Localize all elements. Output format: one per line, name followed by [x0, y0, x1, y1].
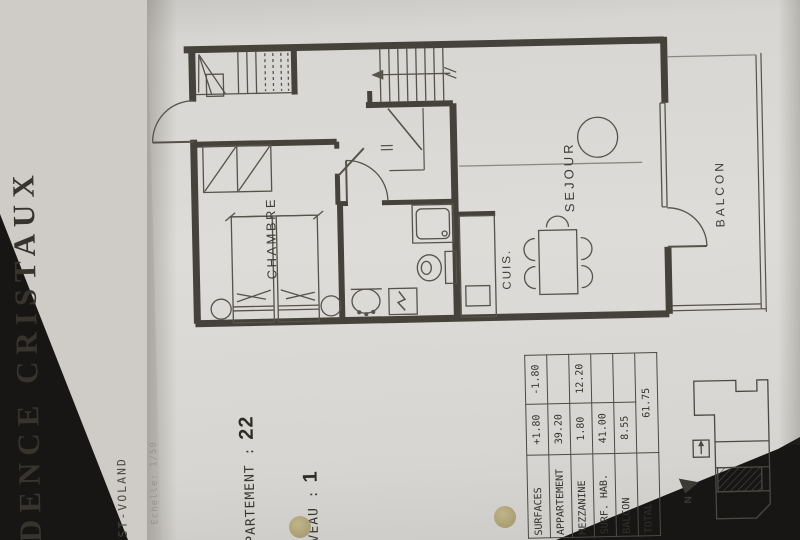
nightstand-symbol — [211, 299, 231, 319]
stairs-upper-flight — [371, 47, 457, 102]
mezzanine-edge-line — [459, 162, 642, 166]
window-symbol — [660, 103, 667, 207]
toilet-symbol — [417, 251, 457, 284]
room-labels: CHAMBRE CUIS. SEJOUR BALCON — [262, 138, 729, 294]
cell-label: APPARTEMENT — [549, 454, 573, 537]
room-label-chambre: CHAMBRE — [263, 197, 280, 280]
site-plan: N — [677, 380, 771, 520]
bed-symbol — [231, 216, 274, 323]
bathroom-fixtures — [349, 204, 457, 316]
balcony-door-arc — [667, 207, 707, 247]
chambre-furniture — [203, 144, 342, 324]
electric-panel-symbol — [389, 288, 418, 315]
chair-symbol — [546, 216, 568, 227]
entrance-door — [152, 101, 194, 143]
pillow-marks — [237, 289, 315, 302]
chair-symbol — [524, 239, 535, 261]
walls — [184, 37, 670, 324]
stairs-winder — [195, 51, 292, 97]
chair-symbol — [524, 267, 535, 289]
sink-symbol — [466, 286, 490, 306]
cell-value — [613, 353, 636, 402]
scanned-floor-plan-photo: IDENCE CRISTAUX REST-VOLAND Echelle: 1/5… — [0, 0, 800, 540]
punch-hole — [289, 516, 311, 538]
residence-title: IDENCE CRISTAUX — [5, 168, 49, 540]
chambre-door-leaf — [338, 148, 365, 176]
surfaces-table: SURFACES +1.80 -1.80 APPARTEMENT 39.20 M… — [524, 352, 661, 539]
round-table-symbol — [577, 117, 618, 158]
shower-symbol — [412, 204, 454, 243]
site-entrance-symbol — [693, 440, 709, 457]
apartment-value: 22 — [235, 415, 258, 440]
building-outline — [694, 380, 769, 443]
cell-label: SURFACES — [527, 455, 551, 538]
location-text: REST-VOLAND — [114, 457, 130, 540]
cell-label: MEZZANINE — [571, 454, 595, 537]
scale-note: Echelle: 1/50 — [149, 441, 161, 525]
cell-label: BALCON — [615, 453, 639, 536]
room-label-balcon: BALCON — [712, 160, 727, 228]
north-label: N — [683, 496, 694, 503]
cell-value: 1.80 — [570, 403, 593, 454]
nightstand-symbol — [321, 296, 341, 316]
cell-value: 39.20 — [548, 403, 571, 454]
dimension-line — [225, 211, 323, 221]
sejour-furniture — [458, 116, 645, 296]
room-label-sejour: SEJOUR — [561, 141, 577, 212]
cell-value — [547, 354, 570, 403]
level-value: 1 — [300, 470, 322, 483]
inner-room-door — [380, 108, 424, 171]
cell-value: +1.80 — [526, 404, 549, 455]
apartment-highlight-hatch — [718, 467, 762, 492]
bathroom-door — [346, 160, 388, 202]
washbasin-symbol — [351, 289, 383, 316]
bed-symbol — [276, 215, 319, 322]
blanket-lines — [233, 305, 319, 311]
north-arrow-icon — [679, 478, 699, 493]
stair-direction-arrow — [371, 70, 383, 80]
room-label-cuisine: CUIS. — [501, 249, 514, 290]
balcony — [659, 53, 766, 314]
chair-symbol — [581, 265, 592, 287]
cell-value: 41.00 — [592, 402, 615, 453]
balcony-railing — [667, 53, 766, 314]
cell-total: 61.75 — [635, 353, 659, 453]
apartment-label: PPARTEMENT : — [242, 447, 259, 540]
table-row: TOTAL 61.75 — [635, 353, 661, 536]
kitchen-counter-symbol — [459, 215, 496, 317]
chair-symbol — [581, 237, 592, 259]
cell-label: TOTAL — [637, 453, 661, 536]
cell-value: -1.80 — [525, 355, 548, 404]
cell-label: SURF. HAB. — [593, 453, 617, 536]
sheet-content: IDENCE CRISTAUX REST-VOLAND Echelle: 1/5… — [0, 0, 800, 540]
dining-table-symbol — [539, 230, 578, 295]
punch-hole — [494, 506, 516, 528]
cell-value: 8.55 — [614, 402, 637, 453]
balcony-door-leaf — [668, 246, 707, 247]
cell-value: 12.20 — [569, 354, 592, 403]
cell-value — [591, 353, 614, 402]
wardrobe-symbol — [203, 145, 272, 192]
apartment-number-line: PPARTEMENT :22 — [235, 415, 261, 540]
building-lower-block — [715, 441, 771, 519]
